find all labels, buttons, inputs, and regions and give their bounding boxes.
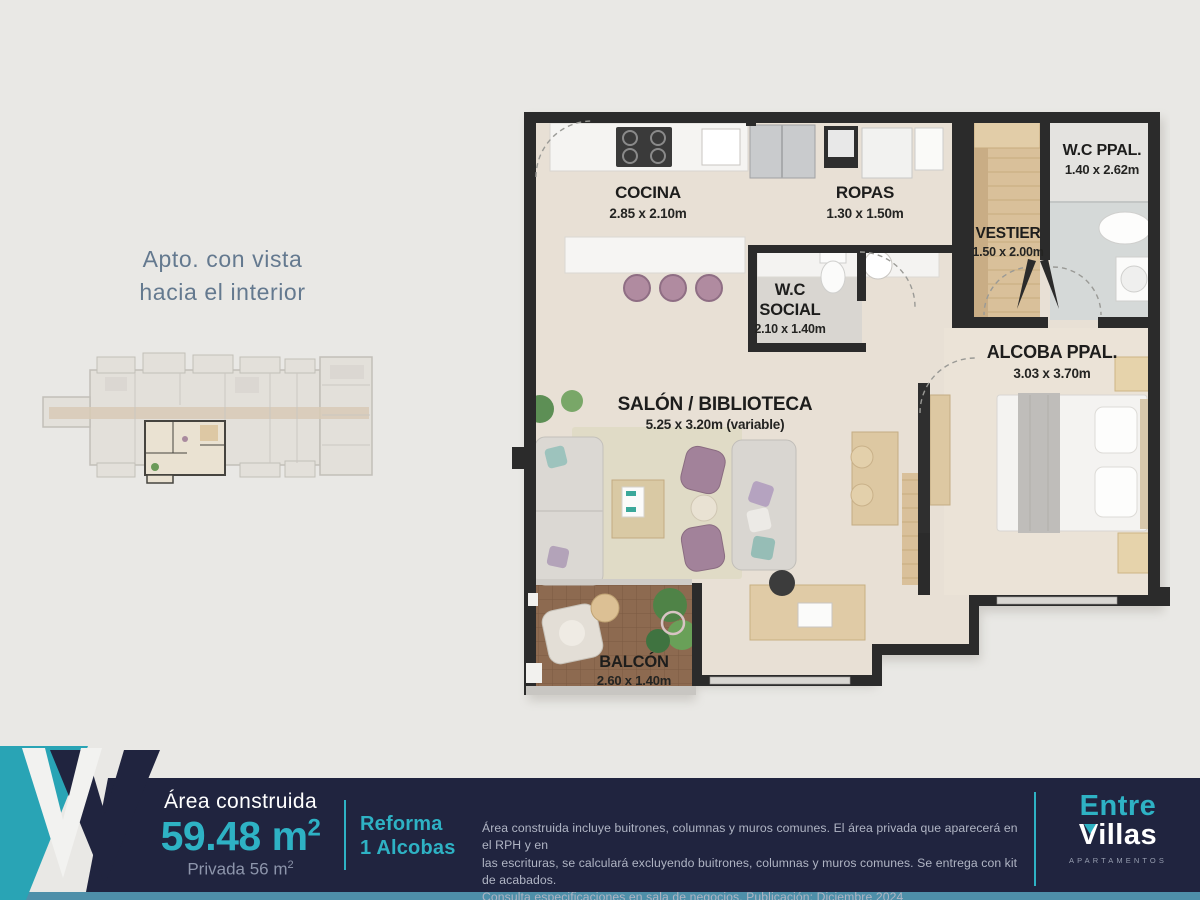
room-label-wc-social-1: W.C <box>775 281 806 299</box>
room-label-wc-social-2: SOCIAL <box>759 301 820 319</box>
area-construida-value: 59.48 m2 <box>138 814 343 858</box>
kitchen-island <box>565 237 745 273</box>
room-dims-balcon: 2.60 x 1.40m <box>597 673 671 688</box>
room-label-ropas: ROPAS <box>836 183 894 202</box>
bathtub-sink-icon <box>1099 212 1151 244</box>
room-dims-ropas: 1.30 x 1.50m <box>826 206 903 221</box>
footer-divider-right <box>1034 792 1036 886</box>
reforma-block: Reforma 1 Alcobas <box>360 812 456 860</box>
plant-icon <box>561 390 583 412</box>
room-label-alcoba: ALCOBA PPAL. <box>987 342 1118 362</box>
brand-logo: Entre Villas APARTAMENTOS <box>1042 792 1194 865</box>
hallway-console <box>851 432 898 525</box>
reforma-line2: 1 Alcobas <box>360 836 456 860</box>
footer-divider-left <box>344 800 346 870</box>
tv-console <box>930 395 950 505</box>
headline-line2: hacia el interior <box>90 276 355 309</box>
brand-v-accent-icon <box>1084 824 1096 834</box>
disclaimer-line2: las escrituras, se calculará excluyendo … <box>482 855 1027 890</box>
room-label-cocina: COCINA <box>615 183 681 202</box>
laptop-icon <box>798 603 832 627</box>
headline: Apto. con vista hacia el interior <box>90 243 355 310</box>
pillow <box>1095 467 1137 517</box>
brand-entre: Entre <box>1042 792 1194 821</box>
chair <box>851 484 873 506</box>
nightstand <box>1115 357 1149 391</box>
blanket <box>1018 393 1060 533</box>
disclaimer-line1: Área construida incluye buitrones, colum… <box>482 820 1027 855</box>
room-dims-salon: 5.25 x 3.20m (variable) <box>646 417 785 432</box>
disclaimer-text: Área construida incluye buitrones, colum… <box>482 820 1027 900</box>
nightstand <box>1118 533 1152 573</box>
headline-line1: Apto. con vista <box>90 243 355 276</box>
stool <box>696 275 722 301</box>
room-dims-wc-ppal: 1.40 x 2.62m <box>1065 162 1139 177</box>
room-label-wc-ppal: W.C PPAL. <box>1063 142 1142 159</box>
round-table <box>591 594 619 622</box>
area-construida-label: Área construida <box>138 790 343 814</box>
stool <box>624 275 650 301</box>
area-block: Área construida 59.48 m2 Privada 56 m2 <box>138 790 343 880</box>
stool <box>660 275 686 301</box>
room-label-balcon: BALCÓN <box>599 652 668 671</box>
armchair <box>679 523 726 573</box>
chair <box>851 446 873 468</box>
room-label-vestier: VESTIER <box>976 225 1041 242</box>
balcony-threshold <box>536 579 692 585</box>
apartment-floor-plan: COCINA 2.85 x 2.10m ROPAS 1.30 x 1.50m W… <box>510 95 1170 720</box>
brand-apartamentos: APARTAMENTOS <box>1042 856 1194 865</box>
flyer-page: Apto. con vista hacia el interior <box>0 0 1200 900</box>
kitchen-sink <box>702 129 740 165</box>
footer-bar: Área construida 59.48 m2 Privada 56 m2 R… <box>0 740 1200 900</box>
building-overview-plan <box>35 345 395 495</box>
highlighted-unit <box>145 421 225 483</box>
dryer-cabinet <box>862 128 912 178</box>
room-dims-wc-social: 2.10 x 1.40m <box>754 322 825 336</box>
disclaimer-line3: Consulta especificaciones en sala de neg… <box>482 889 1027 900</box>
area-privada-value: Privada 56 m2 <box>138 859 343 880</box>
room-label-salon: SALÓN / BIBLIOTECA <box>618 393 813 415</box>
reforma-line1: Reforma <box>360 812 456 836</box>
brand-villas: Villas <box>1042 821 1194 851</box>
office-chair <box>769 570 795 596</box>
room-dims-cocina: 2.85 x 2.10m <box>609 206 686 221</box>
pillow <box>1095 407 1137 453</box>
room-dims-vestier: 1.50 x 2.00m <box>972 245 1043 259</box>
room-dims-alcoba: 3.03 x 3.70m <box>1013 366 1090 381</box>
side-table <box>691 495 717 521</box>
